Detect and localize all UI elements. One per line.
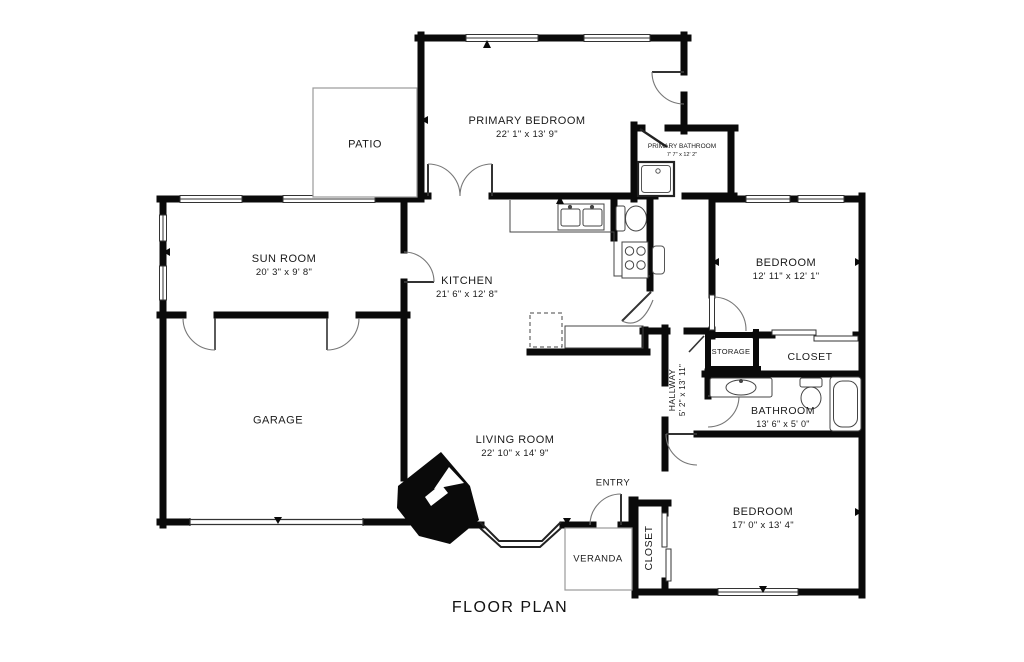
label-entry: ENTRY [596, 478, 631, 491]
shower-icon [638, 162, 674, 196]
room-name: CLOSET [642, 525, 656, 570]
room-dims: 13' 6" x 5' 0" [751, 418, 815, 430]
room-dims: 21' 6" x 12' 8" [436, 289, 498, 302]
label-bathroom: BATHROOM 13' 6" x 5' 0" [751, 404, 815, 430]
label-sun-room: SUN ROOM 20' 3" x 9' 8" [252, 252, 317, 280]
room-dims: 22' 10" x 14' 9" [476, 448, 555, 461]
room-dims: 17' 0" x 13' 4" [732, 520, 794, 533]
label-primary-bathroom: PRIMARY BATHROOM 7' 7" x 12' 2" [648, 143, 716, 159]
room-name: ENTRY [596, 478, 631, 491]
room-name: KITCHEN [436, 274, 498, 289]
fireplace-icon [397, 452, 479, 544]
room-name: PATIO [348, 138, 382, 153]
room-dims: 22' 1" x 13' 9" [468, 129, 585, 142]
room-name: BATHROOM [751, 404, 815, 418]
room-name: SUN ROOM [252, 252, 317, 267]
room-dims: 5' 2" x 13' 11" [678, 364, 689, 416]
room-dims: 7' 7" x 12' 2" [648, 152, 716, 159]
label-storage: STORAGE [712, 347, 751, 357]
room-name: STORAGE [712, 347, 751, 357]
bathroom-sink-icon [710, 378, 772, 397]
kitchen-sink-icon [558, 204, 604, 230]
room-name: PRIMARY BEDROOM [468, 114, 585, 129]
room-name: HALLWAY [667, 364, 678, 416]
bathtub-icon [830, 377, 861, 431]
label-primary-bedroom: PRIMARY BEDROOM 22' 1" x 13' 9" [468, 114, 585, 142]
label-bedroom-bottom-right: BEDROOM 17' 0" x 13' 4" [732, 505, 794, 533]
stove-icon [622, 242, 648, 278]
floor-plan-title: FLOOR PLAN [452, 599, 568, 617]
room-name: PRIMARY BATHROOM [648, 143, 716, 152]
room-dims: 20' 3" x 9' 8" [252, 267, 317, 280]
label-bedroom-top-right: BEDROOM 12' 11" x 12' 1" [753, 256, 820, 284]
label-closet-bottom-right: CLOSET [642, 525, 656, 570]
label-veranda: VERANDA [573, 554, 622, 567]
room-name: BEDROOM [732, 505, 794, 520]
label-garage: GARAGE [253, 414, 303, 429]
water-heater-icon [653, 246, 665, 274]
wc-toilet-icon [616, 206, 647, 231]
room-name: BEDROOM [753, 256, 820, 271]
room-name: GARAGE [253, 414, 303, 429]
room-dims: 12' 11" x 12' 1" [753, 271, 820, 284]
label-living-room: LIVING ROOM 22' 10" x 14' 9" [476, 433, 555, 461]
room-name: LIVING ROOM [476, 433, 555, 448]
label-kitchen: KITCHEN 21' 6" x 12' 8" [436, 274, 498, 302]
room-name: VERANDA [573, 554, 622, 567]
label-closet-top-right: CLOSET [787, 350, 832, 364]
label-patio: PATIO [348, 138, 382, 153]
room-name: CLOSET [787, 350, 832, 364]
label-hallway: HALLWAY 5' 2" x 13' 11" [667, 364, 689, 416]
floor-plan-page: PRIMARY BEDROOM 22' 1" x 13' 9" PATIO PR… [0, 0, 1024, 662]
floor-plan-drawing [0, 0, 1024, 662]
